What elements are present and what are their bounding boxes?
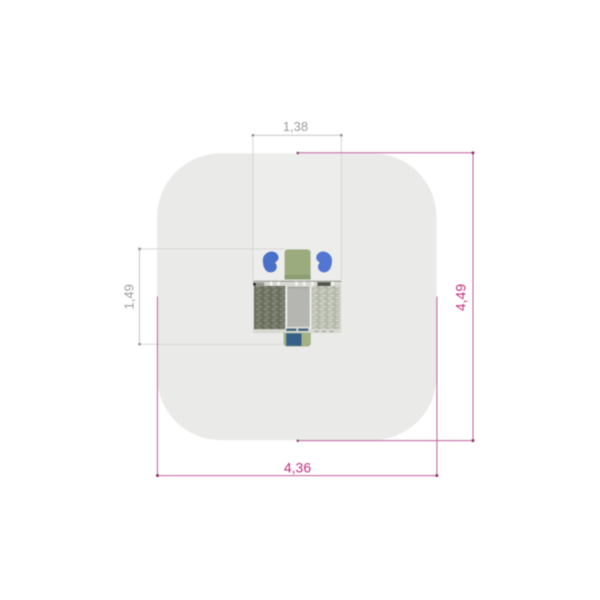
svg-text:1,38: 1,38 (283, 119, 308, 134)
svg-text:4,36: 4,36 (284, 459, 311, 475)
svg-text:1,49: 1,49 (122, 284, 137, 309)
svg-text:4,49: 4,49 (453, 284, 469, 311)
